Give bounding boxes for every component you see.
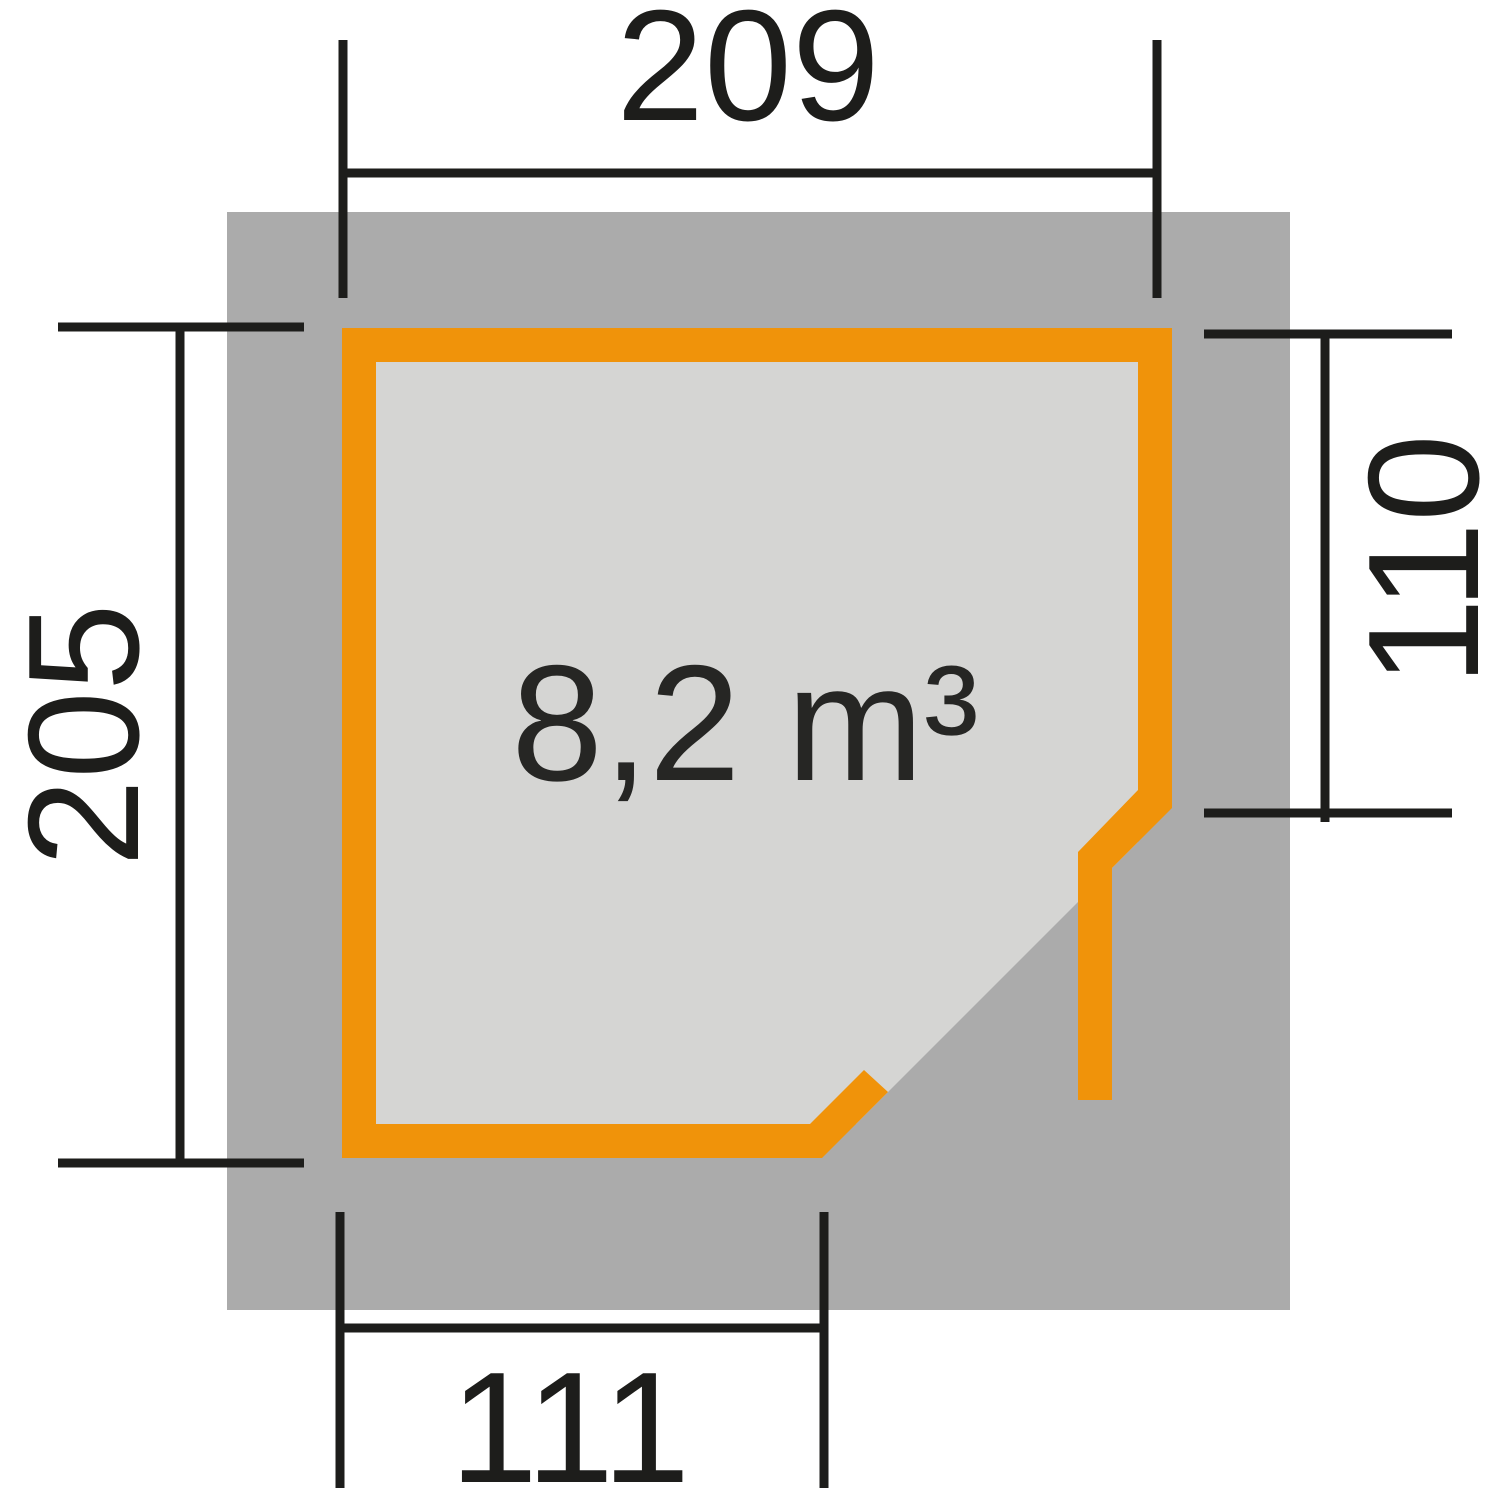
volume-label: 8,2 m³ [511,631,979,815]
floor-plan-canvas: 209 205 110 111 8,2 m³ [0,0,1500,1500]
dimension-bottom-label: 111 [450,1340,690,1500]
dimension-left-label: 205 [0,603,172,867]
wall-top [342,328,1172,362]
wall-left [342,328,376,1158]
dimension-right-label: 110 [1336,434,1500,686]
door-leaf [1078,852,1112,1100]
dimension-top-label: 209 [616,0,880,154]
floor-plan-drawing: 209 205 110 111 8,2 m³ [0,0,1500,1500]
